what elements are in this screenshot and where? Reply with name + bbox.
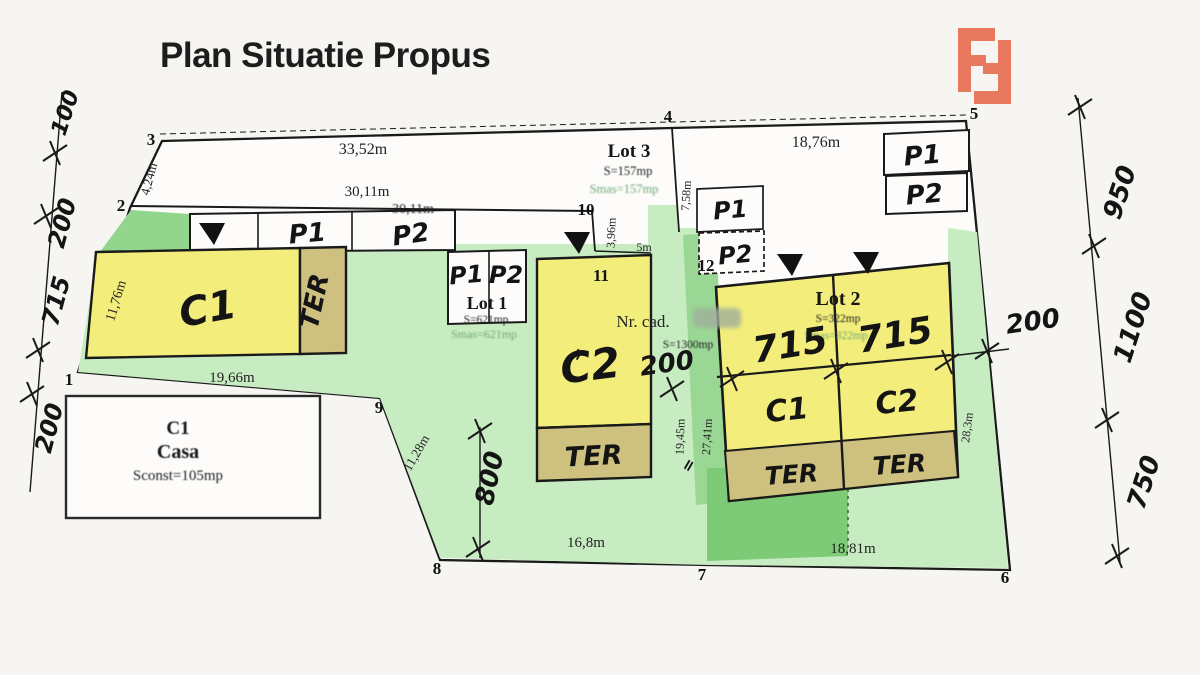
point-8: 8 [433, 559, 442, 578]
left-dim-100: 100 [47, 87, 85, 138]
dim-1966: 19,66m [209, 370, 255, 386]
right-200: 200 [1004, 303, 1062, 340]
p2-lot1: P2 [489, 261, 523, 289]
lot1-name: Lot 1 [467, 293, 508, 313]
dim-2741: 27,41m [699, 418, 715, 456]
point-6: 6 [1001, 568, 1010, 587]
right-dim-950: 950 [1098, 162, 1143, 223]
p1-topright: P1 [902, 139, 942, 172]
point-3: 3 [147, 130, 156, 149]
right-dim-1100: 1100 [1108, 288, 1159, 366]
point-10: 10 [578, 200, 595, 219]
lot2-ter-right: TER [872, 448, 927, 481]
dim-5m: 5m [636, 240, 652, 254]
point-11: 11 [593, 266, 609, 285]
left-dim-200b: 200 [29, 400, 69, 456]
plan-situatie-slide: Plan Situatie Propus [0, 0, 1200, 675]
point-4: 4 [664, 107, 673, 126]
lot3-area-measured: Smas=157mp [590, 182, 659, 196]
dim-1945: 19,45m [672, 418, 687, 455]
dim-168: 16,8m [567, 535, 605, 551]
p2-lot3: P2 [717, 240, 754, 271]
p2-strip: P2 [390, 218, 431, 253]
p2-topright: P2 [904, 178, 944, 211]
left-dim-715: 715 [36, 273, 76, 329]
lot2-c1: C1 [764, 391, 810, 430]
redacted-text [693, 308, 741, 328]
dim-3011b: 30,11m [392, 202, 434, 217]
dim-758: 7,58m [678, 179, 694, 211]
p1-lot1: P1 [448, 260, 485, 291]
lot3-area: S=157mp [604, 164, 653, 178]
right-dim-750: 750 [1122, 452, 1167, 513]
casa-name: Casa [157, 441, 199, 463]
lot1-area: S=621mp [464, 314, 509, 326]
dim-3352: 33,52m [339, 141, 388, 158]
point-12: 12 [698, 256, 715, 275]
lot2-name: Lot 2 [816, 288, 861, 310]
dim-3011: 30,11m [345, 184, 390, 200]
point-5: 5 [970, 104, 979, 123]
left-dim-200a: 200 [42, 195, 82, 251]
point-2: 2 [117, 196, 126, 215]
ff-logo [958, 28, 1011, 104]
lot2-ter-left: TER [764, 458, 819, 491]
dim-1881: 18,81m [830, 541, 876, 557]
point-1: 1 [65, 370, 74, 389]
site-plan-drawing: C1 Casa Sconst=105mp [0, 0, 1200, 675]
p1-strip: P1 [287, 217, 327, 250]
green-strip-above-c1 [97, 210, 190, 256]
nr-cad-label: Nr. cad. [616, 312, 669, 331]
c2-handwritten: C2 [557, 338, 623, 394]
dim-1876: 18,76m [792, 134, 841, 151]
casa-info-box: C1 Casa Sconst=105mp [66, 396, 320, 518]
p1-lot3: P1 [712, 195, 749, 226]
dim-396: 3,96m [603, 217, 618, 248]
c1-handwritten: C1 [176, 282, 240, 337]
casa-c1-label: C1 [166, 418, 189, 439]
ter-c2: TER [564, 440, 623, 474]
point-9: 9 [375, 398, 384, 417]
lot2-c2: C2 [874, 383, 920, 422]
point-7: 7 [698, 565, 707, 584]
casa-area: Sconst=105mp [133, 468, 223, 484]
lot3-name: Lot 3 [608, 141, 651, 162]
lot1-area-measured: Smas=621mp [451, 327, 517, 341]
